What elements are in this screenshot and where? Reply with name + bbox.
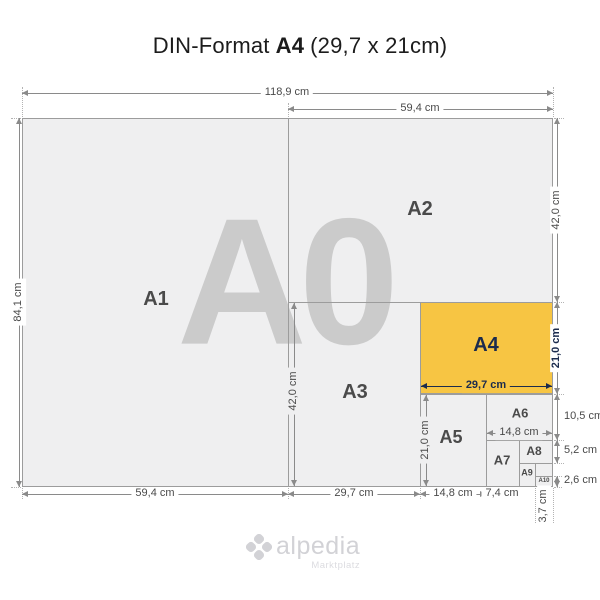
dim-a8-height: 5,2 cm — [562, 444, 599, 458]
dim-a5-width: 14,8 cm — [429, 487, 476, 501]
label-a1: A1 — [143, 289, 169, 309]
label-a3: A3 — [342, 382, 368, 402]
extension-line — [554, 463, 564, 464]
dim-line-a6-height — [557, 394, 558, 440]
label-a7: A7 — [494, 454, 511, 467]
divider-a9-right — [535, 463, 536, 487]
dim-total-height: 84,1 cm — [12, 278, 26, 325]
divider-a10-top — [535, 476, 553, 477]
dim-a2-width: 59,4 cm — [396, 102, 443, 116]
dim-a3-height: 42,0 cm — [287, 367, 301, 414]
label-a5: A5 — [439, 428, 462, 446]
dim-a10-height: 2,6 cm — [562, 474, 599, 488]
logo-tagline: Marktplatz — [276, 561, 360, 571]
dim-total-width: 118,9 cm — [261, 86, 313, 100]
din-format-diagram: DIN-FormatA4(29,7 x 21cm) A0 A1 A2 A3 A4… — [0, 0, 600, 600]
title-highlight: A4 — [276, 33, 305, 58]
label-a6: A6 — [512, 407, 529, 420]
extension-line — [553, 87, 554, 117]
extension-line — [553, 488, 554, 523]
label-a4: A4 — [473, 335, 499, 355]
label-a10: A10 — [538, 478, 549, 484]
clover-pinwheel-icon — [246, 534, 272, 560]
divider-a8-bottom — [519, 463, 553, 464]
logo-wordmark: alpedia Marktplatz — [276, 534, 360, 571]
dim-a4-width: 29,7 cm — [462, 379, 510, 393]
label-a9: A9 — [521, 469, 533, 478]
dim-a6-width: 14,8 cm — [495, 426, 542, 440]
title-suffix: (29,7 x 21cm) — [310, 33, 447, 58]
dim-a7-width: 7,4 cm — [481, 487, 522, 501]
dim-a10-width: 3,7 cm — [537, 485, 551, 526]
extension-line — [535, 488, 536, 523]
title-prefix: DIN-Format — [153, 33, 270, 58]
logo-brand: alpedia — [276, 534, 360, 559]
dim-a1-width: 59,4 cm — [131, 487, 178, 501]
dim-line-a8-height — [557, 440, 558, 463]
label-a2: A2 — [407, 199, 433, 219]
dim-line-a10-height — [557, 476, 558, 487]
dim-a4-height: 21,0 cm — [550, 324, 564, 372]
extension-line — [11, 487, 21, 488]
page-title: DIN-FormatA4(29,7 x 21cm) — [0, 33, 600, 59]
dim-a5-height: 21,0 cm — [419, 416, 433, 463]
dim-a2-height: 42,0 cm — [550, 186, 564, 233]
dim-a6-height: 10,5 cm — [562, 410, 600, 424]
alpedia-logo: alpedia Marktplatz — [246, 534, 360, 571]
label-a8: A8 — [526, 445, 541, 457]
dim-a3-width: 29,7 cm — [330, 487, 377, 501]
watermark-a0: A0 — [177, 193, 391, 373]
